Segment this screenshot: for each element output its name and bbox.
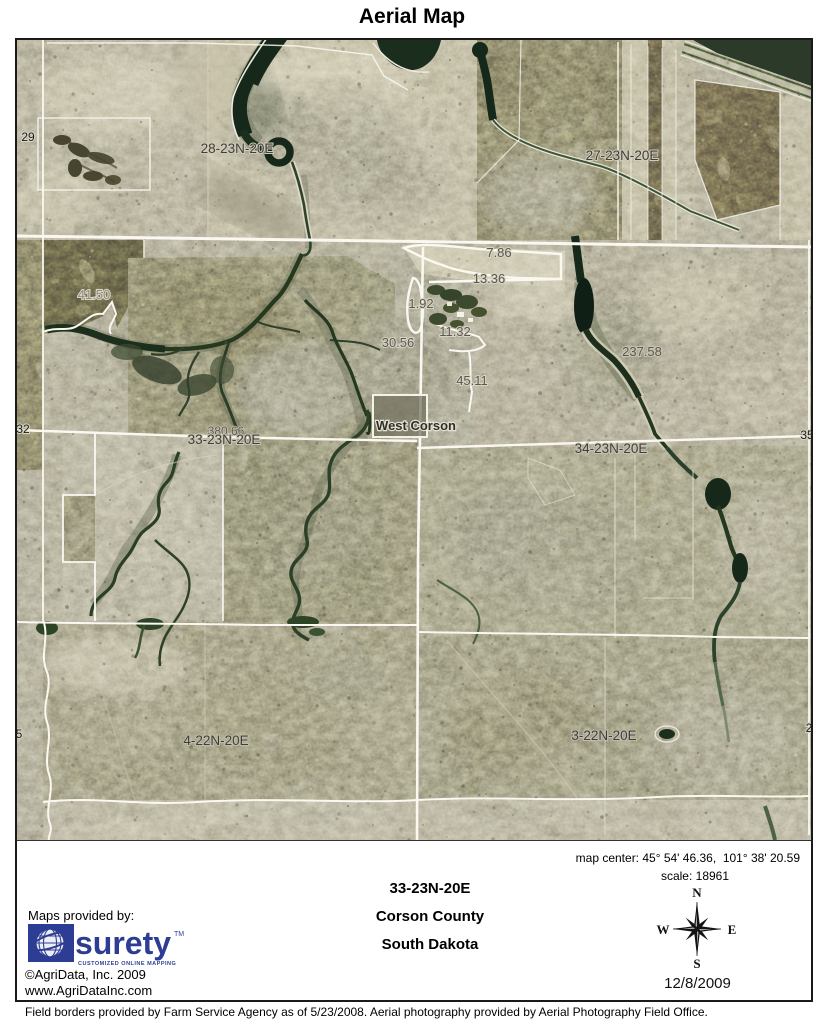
svg-text:35: 35 <box>800 428 811 442</box>
svg-text:West Corson: West Corson <box>376 418 456 433</box>
svg-text:11.32: 11.32 <box>439 324 471 339</box>
svg-text:E: E <box>728 922 737 937</box>
svg-text:3-22N-20E: 3-22N-20E <box>571 728 636 743</box>
svg-text:TM: TM <box>174 931 184 938</box>
svg-text:7.86: 7.86 <box>486 245 511 260</box>
svg-text:29: 29 <box>21 130 35 144</box>
svg-text:41.50: 41.50 <box>78 287 111 302</box>
svg-text:45.11: 45.11 <box>456 373 488 388</box>
svg-text:W: W <box>657 922 670 937</box>
svg-text:1.92: 1.92 <box>408 296 433 311</box>
svg-text:5: 5 <box>17 727 23 741</box>
svg-text:4-22N-20E: 4-22N-20E <box>183 733 248 748</box>
svg-text:27-23N-20E: 27-23N-20E <box>586 148 659 163</box>
svg-text:32: 32 <box>17 422 30 436</box>
svg-text:N: N <box>692 885 702 900</box>
svg-text:33-23N-20E: 33-23N-20E <box>188 432 261 447</box>
svg-text:surety: surety <box>75 925 171 961</box>
svg-text:30.56: 30.56 <box>382 335 415 350</box>
svg-text:28-23N-20E: 28-23N-20E <box>201 141 274 156</box>
svg-text:34-23N-20E: 34-23N-20E <box>575 441 648 456</box>
svg-text:13.36: 13.36 <box>473 271 506 286</box>
svg-text:S: S <box>693 956 700 971</box>
svg-text:2: 2 <box>806 721 811 735</box>
svg-text:237.58: 237.58 <box>622 344 662 359</box>
